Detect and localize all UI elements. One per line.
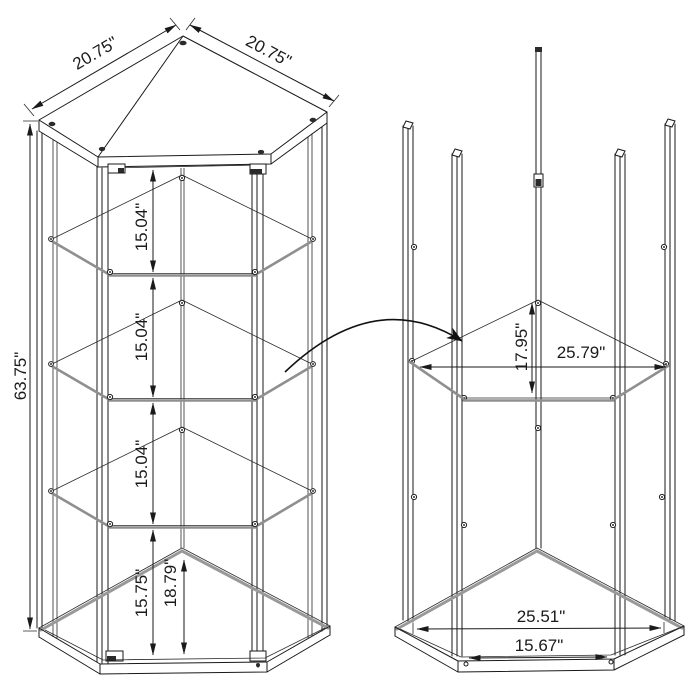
frame-posts bbox=[403, 47, 675, 656]
glass-shelf-1 bbox=[49, 175, 316, 276]
diagram-canvas: 20.75" 20.75" 63.75" 15.04" 15.04" 15.04… bbox=[0, 0, 700, 700]
dim-shelf-gap-1: 15.04" bbox=[132, 170, 153, 272]
cabinet-side-frames bbox=[37, 123, 327, 664]
dim-label-top-edge-right: 20.75" bbox=[243, 31, 295, 70]
dim-label-shelf-width: 25.79" bbox=[557, 343, 606, 362]
glass-shelf-3 bbox=[49, 427, 316, 528]
dim-label-shelf-depth: 17.95" bbox=[512, 323, 531, 372]
dim-label-base-inner-width: 15.67" bbox=[515, 636, 564, 655]
dim-base-outer-width: 25.51" bbox=[413, 607, 664, 634]
dim-label-gap-1: 15.04" bbox=[132, 203, 151, 252]
dim-label-base-outer-width: 25.51" bbox=[517, 607, 566, 626]
dim-floor-depth: 18.79" bbox=[161, 559, 184, 654]
dim-top-edge-left: 20.75" bbox=[24, 18, 180, 116]
dimension-diagram: 20.75" 20.75" 63.75" 15.04" 15.04" 15.04… bbox=[0, 0, 700, 700]
dim-base-inner-width: 15.67" bbox=[469, 636, 607, 658]
dim-label-bottom-gap: 15.75" bbox=[132, 569, 151, 618]
door-latch-top bbox=[250, 164, 266, 174]
dim-shelf-depth: 17.95" bbox=[512, 303, 532, 393]
frame-detail-view bbox=[395, 47, 684, 672]
dim-label-floor-depth: 18.79" bbox=[161, 559, 180, 608]
dim-label-gap-2: 15.04" bbox=[132, 313, 151, 362]
dim-overall-height: 63.75" bbox=[11, 121, 38, 631]
detail-glass-shelf bbox=[410, 300, 668, 401]
dim-shelf-gap-2: 15.04" bbox=[132, 278, 153, 397]
dim-shelf-gap-3: 15.04" bbox=[132, 403, 153, 524]
door-hinge-top bbox=[108, 164, 125, 173]
dim-label-top-edge-left: 20.75" bbox=[69, 33, 121, 74]
dim-bottom-gap: 15.75" bbox=[132, 530, 153, 655]
dim-top-edge-right: 20.75" bbox=[186, 18, 339, 107]
shelf-support-clips bbox=[409, 244, 668, 527]
glass-shelf-2 bbox=[49, 300, 316, 401]
dim-label-gap-3: 15.04" bbox=[132, 440, 151, 489]
dim-label-overall-height: 63.75" bbox=[11, 352, 30, 401]
